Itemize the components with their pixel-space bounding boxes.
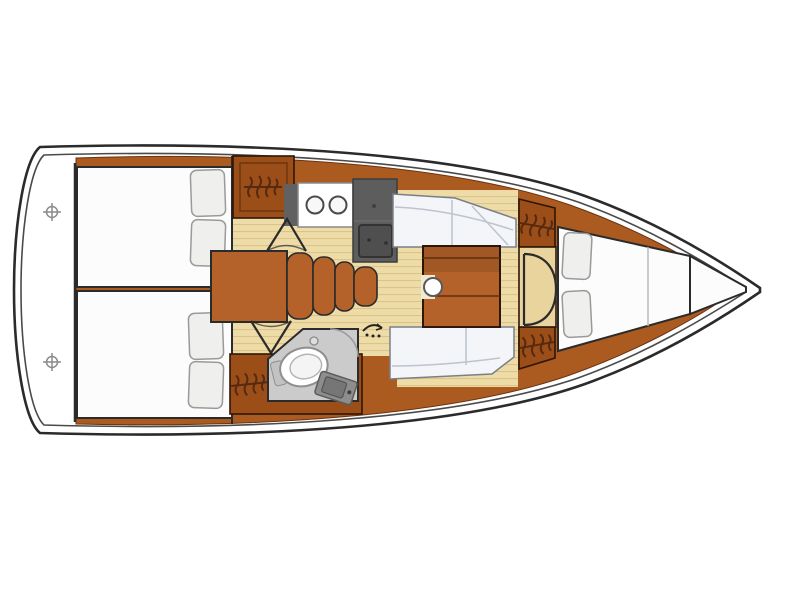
head-drain-icon — [310, 337, 318, 345]
table-leaf-shade — [423, 246, 500, 272]
pillow — [188, 361, 224, 408]
pillow — [562, 290, 592, 337]
stove-burner-icon — [330, 197, 347, 214]
floor-plan-canvas — [0, 0, 800, 600]
companionway-engine-box — [211, 251, 287, 322]
pillow — [562, 232, 592, 279]
floor-plan-page — [0, 0, 800, 600]
companionway-step — [354, 267, 377, 306]
pillow — [190, 169, 226, 216]
companionway-step — [287, 253, 313, 319]
table-leg — [424, 278, 442, 296]
drain-dot-icon — [367, 238, 371, 242]
drain-dot-icon — [384, 241, 388, 245]
companionway-step — [313, 257, 335, 315]
companionway-step — [335, 262, 354, 311]
saloon-starboard-settee — [390, 327, 514, 379]
stove-burner-icon — [307, 197, 324, 214]
faucet-dot-icon — [372, 204, 376, 208]
galley-sink — [359, 225, 392, 257]
